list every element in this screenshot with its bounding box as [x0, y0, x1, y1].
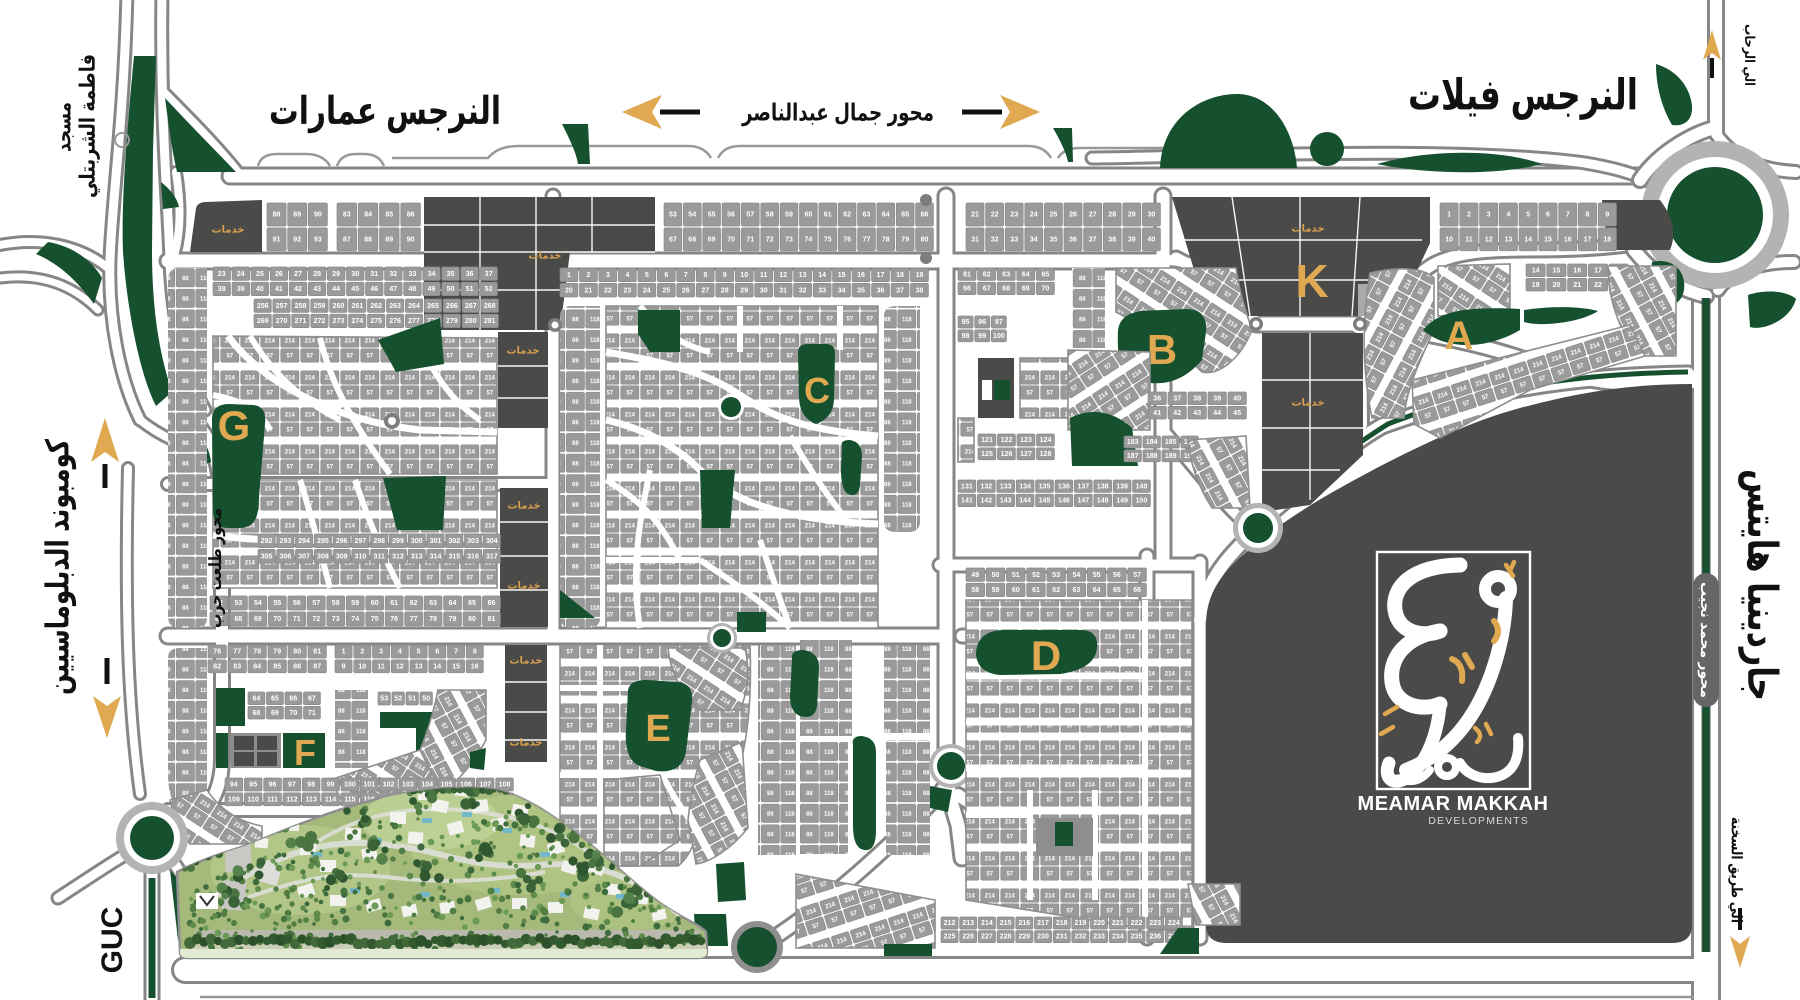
- svg-text:76: 76: [390, 616, 398, 623]
- svg-text:29: 29: [1128, 212, 1136, 219]
- svg-text:28: 28: [721, 287, 729, 294]
- svg-text:7: 7: [1566, 212, 1570, 219]
- svg-text:64: 64: [449, 600, 457, 607]
- svg-text:270: 270: [276, 318, 288, 325]
- svg-text:227: 227: [981, 934, 993, 941]
- svg-text:38: 38: [218, 286, 226, 293]
- svg-text:71: 71: [293, 616, 301, 623]
- svg-text:52: 52: [1032, 572, 1040, 579]
- svg-text:48: 48: [409, 286, 417, 293]
- svg-text:113: 113: [306, 796, 317, 803]
- svg-text:34: 34: [838, 287, 846, 294]
- svg-text:185: 185: [1165, 439, 1177, 446]
- svg-text:27: 27: [701, 287, 709, 294]
- svg-text:58: 58: [332, 600, 340, 607]
- svg-text:66: 66: [488, 600, 496, 607]
- svg-text:61: 61: [963, 271, 971, 278]
- svg-text:267: 267: [465, 303, 477, 310]
- svg-text:17: 17: [1594, 267, 1602, 274]
- svg-text:275: 275: [370, 318, 382, 325]
- svg-text:297: 297: [355, 538, 367, 545]
- svg-text:8: 8: [473, 649, 477, 656]
- svg-text:30: 30: [351, 271, 359, 278]
- svg-text:220: 220: [1093, 920, 1105, 927]
- svg-text:70: 70: [727, 236, 735, 243]
- svg-text:125: 125: [981, 451, 993, 458]
- svg-text:68: 68: [1002, 286, 1010, 293]
- svg-text:16: 16: [1564, 236, 1572, 243]
- svg-text:59: 59: [785, 212, 793, 219]
- svg-text:142: 142: [980, 498, 992, 505]
- svg-text:10: 10: [1445, 236, 1453, 243]
- svg-text:49: 49: [428, 286, 436, 293]
- svg-text:62: 62: [843, 212, 851, 219]
- svg-text:33: 33: [818, 287, 826, 294]
- svg-text:18: 18: [1603, 236, 1611, 243]
- svg-text:70: 70: [290, 710, 298, 717]
- svg-text:311: 311: [374, 553, 385, 560]
- svg-text:32: 32: [799, 287, 807, 294]
- svg-text:69: 69: [271, 710, 279, 717]
- svg-text:64: 64: [882, 212, 890, 219]
- svg-text:187: 187: [1127, 453, 1139, 460]
- svg-text:52: 52: [394, 696, 402, 703]
- svg-text:315: 315: [448, 553, 460, 560]
- svg-text:214: 214: [981, 920, 993, 927]
- svg-text:37: 37: [1089, 236, 1097, 243]
- svg-text:111: 111: [267, 796, 278, 803]
- svg-text:65: 65: [271, 695, 279, 702]
- svg-text:64: 64: [253, 695, 261, 702]
- svg-text:229: 229: [1018, 934, 1030, 941]
- svg-text:19: 19: [916, 272, 924, 279]
- svg-text:133: 133: [1000, 483, 1012, 490]
- svg-text:70: 70: [273, 616, 281, 623]
- svg-text:55: 55: [708, 212, 716, 219]
- svg-text:103: 103: [402, 782, 414, 789]
- svg-text:77: 77: [233, 649, 241, 656]
- svg-text:A: A: [1445, 314, 1474, 358]
- svg-text:62: 62: [1052, 587, 1060, 594]
- svg-text:66: 66: [290, 695, 298, 702]
- svg-text:80: 80: [293, 649, 301, 656]
- svg-text:39: 39: [1213, 395, 1221, 402]
- svg-text:40: 40: [256, 286, 264, 293]
- svg-text:66: 66: [921, 212, 929, 219]
- svg-text:82: 82: [213, 663, 221, 670]
- svg-text:53: 53: [1052, 572, 1060, 579]
- svg-text:44: 44: [332, 286, 340, 293]
- svg-text:14: 14: [818, 272, 826, 279]
- svg-text:30: 30: [760, 287, 768, 294]
- svg-text:305: 305: [261, 553, 273, 560]
- svg-text:215: 215: [1000, 920, 1012, 927]
- svg-text:85: 85: [273, 663, 281, 670]
- svg-text:31: 31: [779, 287, 787, 294]
- svg-text:97: 97: [288, 782, 296, 789]
- svg-text:147: 147: [1077, 498, 1089, 505]
- svg-text:39: 39: [1128, 236, 1136, 243]
- svg-text:23: 23: [218, 271, 226, 278]
- svg-text:232: 232: [1075, 934, 1087, 941]
- svg-text:13: 13: [1505, 236, 1513, 243]
- svg-text:16: 16: [471, 663, 479, 670]
- svg-text:132: 132: [980, 483, 992, 490]
- svg-text:25: 25: [256, 271, 264, 278]
- svg-text:79: 79: [449, 616, 457, 623]
- svg-text:31: 31: [971, 236, 979, 243]
- svg-text:188: 188: [1146, 453, 1158, 460]
- svg-text:20: 20: [1553, 282, 1561, 289]
- svg-text:35: 35: [1050, 236, 1058, 243]
- svg-text:73: 73: [332, 616, 340, 623]
- svg-text:57: 57: [312, 600, 320, 607]
- svg-text:25: 25: [662, 287, 670, 294]
- svg-text:139: 139: [1116, 483, 1128, 490]
- svg-text:23: 23: [624, 287, 632, 294]
- svg-text:2: 2: [360, 649, 364, 656]
- svg-text:265: 265: [427, 303, 439, 310]
- svg-text:B: B: [1147, 326, 1177, 373]
- svg-text:94: 94: [230, 782, 238, 789]
- svg-text:60: 60: [1012, 587, 1020, 594]
- svg-text:26: 26: [1069, 212, 1077, 219]
- svg-text:100: 100: [344, 782, 356, 789]
- svg-text:88: 88: [273, 212, 281, 219]
- svg-text:68: 68: [253, 710, 261, 717]
- svg-text:73: 73: [785, 236, 793, 243]
- svg-text:59: 59: [351, 600, 359, 607]
- svg-text:33: 33: [1010, 236, 1018, 243]
- svg-text:236: 236: [1149, 934, 1161, 941]
- svg-text:45: 45: [1233, 410, 1241, 417]
- svg-text:76: 76: [213, 649, 221, 656]
- svg-text:25: 25: [1050, 212, 1058, 219]
- svg-text:42: 42: [294, 286, 302, 293]
- svg-text:45: 45: [351, 286, 359, 293]
- svg-text:24: 24: [643, 287, 651, 294]
- svg-text:80: 80: [468, 616, 476, 623]
- svg-text:C: C: [804, 370, 830, 411]
- svg-text:140: 140: [1136, 483, 1148, 490]
- svg-text:22: 22: [991, 212, 999, 219]
- svg-text:41: 41: [275, 286, 283, 293]
- svg-text:20: 20: [565, 287, 573, 294]
- svg-text:63: 63: [1002, 271, 1010, 278]
- svg-text:104: 104: [421, 782, 433, 789]
- svg-text:98: 98: [962, 333, 970, 340]
- svg-text:75: 75: [824, 236, 832, 243]
- svg-text:280: 280: [465, 318, 477, 325]
- svg-text:281: 281: [484, 318, 496, 325]
- svg-text:40: 40: [1233, 395, 1241, 402]
- svg-text:F: F: [294, 732, 316, 773]
- svg-text:213: 213: [962, 920, 974, 927]
- svg-text:75: 75: [371, 616, 379, 623]
- svg-text:292: 292: [261, 538, 273, 545]
- svg-text:276: 276: [389, 318, 401, 325]
- svg-text:21: 21: [585, 287, 593, 294]
- svg-text:279: 279: [446, 318, 458, 325]
- svg-text:28: 28: [1108, 212, 1116, 219]
- svg-text:66: 66: [963, 286, 971, 293]
- svg-text:GUC: GUC: [96, 907, 129, 974]
- svg-text:36: 36: [877, 287, 885, 294]
- svg-text:78: 78: [429, 616, 437, 623]
- svg-text:234: 234: [1112, 934, 1124, 941]
- svg-text:108: 108: [499, 782, 511, 789]
- svg-text:28: 28: [313, 271, 321, 278]
- svg-text:97: 97: [995, 319, 1003, 326]
- svg-text:67: 67: [308, 695, 316, 702]
- svg-text:12: 12: [1485, 236, 1493, 243]
- svg-text:13: 13: [415, 663, 423, 670]
- svg-text:1: 1: [1447, 212, 1451, 219]
- svg-text:87: 87: [343, 236, 351, 243]
- svg-text:57: 57: [1133, 572, 1141, 579]
- svg-text:67: 67: [983, 286, 991, 293]
- svg-text:77: 77: [863, 236, 871, 243]
- svg-text:101: 101: [363, 782, 375, 789]
- svg-text:149: 149: [1116, 498, 1128, 505]
- svg-text:135: 135: [1039, 483, 1051, 490]
- svg-text:15: 15: [1553, 267, 1561, 274]
- svg-text:71: 71: [746, 236, 754, 243]
- svg-text:62: 62: [983, 271, 991, 278]
- svg-text:24: 24: [1030, 212, 1038, 219]
- svg-text:22: 22: [604, 287, 612, 294]
- svg-text:61: 61: [824, 212, 832, 219]
- svg-text:123: 123: [1020, 437, 1032, 444]
- svg-text:15: 15: [1544, 236, 1552, 243]
- svg-text:MEAMAR MAKKAH: MEAMAR MAKKAH: [1358, 793, 1549, 815]
- svg-text:296: 296: [336, 538, 348, 545]
- svg-text:15: 15: [452, 663, 460, 670]
- svg-text:34: 34: [1030, 236, 1038, 243]
- svg-text:G: G: [218, 402, 251, 449]
- svg-text:1: 1: [342, 649, 346, 656]
- svg-text:78: 78: [882, 236, 890, 243]
- svg-text:27: 27: [294, 271, 302, 278]
- svg-text:109: 109: [228, 796, 240, 803]
- svg-text:6: 6: [435, 649, 439, 656]
- svg-text:230: 230: [1037, 934, 1049, 941]
- svg-text:257: 257: [276, 303, 288, 310]
- svg-text:65: 65: [901, 212, 909, 219]
- svg-text:269: 269: [257, 318, 269, 325]
- svg-text:256: 256: [257, 303, 269, 310]
- svg-text:DEVELOPMENTS: DEVELOPMENTS: [1428, 815, 1529, 827]
- svg-text:300: 300: [411, 538, 423, 545]
- svg-text:11: 11: [1465, 236, 1473, 243]
- svg-text:235: 235: [1131, 934, 1143, 941]
- svg-text:222: 222: [1131, 920, 1143, 927]
- svg-text:49: 49: [971, 572, 979, 579]
- svg-text:39: 39: [237, 286, 245, 293]
- svg-text:307: 307: [298, 553, 310, 560]
- svg-text:66: 66: [1133, 587, 1141, 594]
- svg-text:96: 96: [978, 319, 986, 326]
- svg-text:16: 16: [1573, 267, 1581, 274]
- svg-text:51: 51: [408, 696, 416, 703]
- svg-text:115: 115: [344, 796, 355, 803]
- svg-text:E: E: [645, 708, 670, 750]
- svg-text:65: 65: [1042, 271, 1050, 278]
- svg-text:303: 303: [467, 538, 479, 545]
- svg-text:228: 228: [1000, 934, 1012, 941]
- svg-text:8: 8: [703, 272, 707, 279]
- svg-text:98: 98: [307, 782, 315, 789]
- svg-text:294: 294: [298, 538, 310, 545]
- svg-text:6: 6: [1546, 212, 1550, 219]
- svg-text:183: 183: [1127, 439, 1139, 446]
- svg-text:299: 299: [392, 538, 404, 545]
- svg-text:263: 263: [389, 303, 401, 310]
- svg-text:30: 30: [1148, 212, 1156, 219]
- svg-text:316: 316: [467, 553, 479, 560]
- svg-text:38: 38: [1108, 236, 1116, 243]
- svg-text:308: 308: [317, 553, 329, 560]
- svg-text:189: 189: [1165, 453, 1177, 460]
- svg-text:35: 35: [857, 287, 865, 294]
- svg-text:89: 89: [385, 236, 393, 243]
- svg-text:29: 29: [332, 271, 340, 278]
- svg-text:264: 264: [408, 303, 420, 310]
- svg-text:27: 27: [1089, 212, 1097, 219]
- svg-text:65: 65: [1113, 587, 1121, 594]
- svg-text:26: 26: [682, 287, 690, 294]
- svg-text:212: 212: [944, 920, 956, 927]
- svg-text:266: 266: [446, 303, 458, 310]
- svg-text:231: 231: [1056, 934, 1068, 941]
- svg-text:223: 223: [1149, 920, 1161, 927]
- svg-text:24: 24: [237, 271, 245, 278]
- svg-text:37: 37: [1173, 395, 1181, 402]
- svg-text:52: 52: [485, 286, 493, 293]
- svg-text:14: 14: [433, 663, 441, 670]
- svg-text:63: 63: [1073, 587, 1081, 594]
- svg-text:37: 37: [485, 271, 493, 278]
- svg-text:233: 233: [1093, 934, 1105, 941]
- svg-text:268: 268: [484, 303, 496, 310]
- svg-text:50: 50: [447, 286, 455, 293]
- svg-text:60: 60: [371, 600, 379, 607]
- svg-text:46: 46: [370, 286, 378, 293]
- svg-text:102: 102: [383, 782, 395, 789]
- svg-text:6: 6: [664, 272, 668, 279]
- svg-text:12: 12: [396, 663, 404, 670]
- svg-text:314: 314: [430, 553, 442, 560]
- svg-text:92: 92: [293, 236, 301, 243]
- svg-text:301: 301: [430, 538, 442, 545]
- svg-text:62: 62: [410, 600, 418, 607]
- svg-text:36: 36: [466, 271, 474, 278]
- svg-text:1: 1: [567, 272, 571, 279]
- svg-text:304: 304: [486, 538, 498, 545]
- svg-text:224: 224: [1168, 920, 1180, 927]
- svg-text:225: 225: [944, 934, 956, 941]
- svg-text:11: 11: [377, 663, 385, 670]
- svg-text:15: 15: [838, 272, 846, 279]
- svg-text:65: 65: [468, 600, 476, 607]
- svg-text:59: 59: [992, 587, 1000, 594]
- svg-text:51: 51: [466, 286, 474, 293]
- svg-text:29: 29: [740, 287, 748, 294]
- svg-text:21: 21: [971, 212, 979, 219]
- svg-text:68: 68: [235, 616, 243, 623]
- svg-text:136: 136: [1058, 483, 1070, 490]
- svg-text:32: 32: [389, 271, 397, 278]
- svg-text:53: 53: [380, 696, 388, 703]
- svg-text:16: 16: [857, 272, 865, 279]
- svg-text:44: 44: [1213, 410, 1221, 417]
- svg-text:114: 114: [325, 796, 336, 803]
- svg-text:150: 150: [1136, 498, 1148, 505]
- svg-text:126: 126: [1001, 451, 1013, 458]
- svg-text:122: 122: [1001, 437, 1013, 444]
- svg-text:43: 43: [1193, 410, 1201, 417]
- svg-text:100: 100: [993, 333, 1005, 340]
- svg-text:184: 184: [1146, 439, 1158, 446]
- svg-text:138: 138: [1097, 483, 1109, 490]
- svg-text:17: 17: [1584, 236, 1592, 243]
- svg-text:121: 121: [981, 437, 993, 444]
- svg-text:274: 274: [351, 318, 363, 325]
- svg-text:226: 226: [962, 934, 974, 941]
- svg-text:218: 218: [1056, 920, 1068, 927]
- svg-text:37: 37: [896, 287, 904, 294]
- svg-text:295: 295: [317, 538, 329, 545]
- svg-text:69: 69: [1022, 286, 1030, 293]
- svg-text:8: 8: [1586, 212, 1590, 219]
- svg-text:88: 88: [364, 236, 372, 243]
- svg-text:54: 54: [1073, 572, 1081, 579]
- svg-text:260: 260: [333, 303, 345, 310]
- svg-text:72: 72: [312, 616, 320, 623]
- svg-text:272: 272: [314, 318, 326, 325]
- svg-text:4: 4: [398, 649, 402, 656]
- svg-text:50: 50: [422, 696, 430, 703]
- svg-text:110: 110: [248, 796, 259, 803]
- svg-text:81: 81: [488, 616, 496, 623]
- svg-text:85: 85: [385, 212, 393, 219]
- svg-text:99: 99: [327, 782, 335, 789]
- svg-text:2: 2: [1467, 212, 1471, 219]
- svg-text:127: 127: [1020, 451, 1032, 458]
- svg-text:55: 55: [273, 600, 281, 607]
- svg-text:216: 216: [1018, 920, 1030, 927]
- svg-text:63: 63: [863, 212, 871, 219]
- svg-text:96: 96: [269, 782, 277, 789]
- svg-text:9: 9: [723, 272, 727, 279]
- svg-text:56: 56: [727, 212, 735, 219]
- svg-text:11: 11: [760, 272, 768, 279]
- svg-text:79: 79: [273, 649, 281, 656]
- svg-text:18: 18: [896, 272, 904, 279]
- svg-text:38: 38: [916, 287, 924, 294]
- svg-text:124: 124: [1040, 437, 1052, 444]
- svg-text:56: 56: [293, 600, 301, 607]
- svg-text:91: 91: [273, 236, 281, 243]
- svg-text:69: 69: [708, 236, 716, 243]
- svg-text:5: 5: [645, 272, 649, 279]
- svg-text:69: 69: [254, 616, 262, 623]
- svg-text:23: 23: [1010, 212, 1018, 219]
- svg-text:217: 217: [1037, 920, 1049, 927]
- svg-text:67: 67: [669, 236, 677, 243]
- svg-text:7: 7: [454, 649, 458, 656]
- svg-text:87: 87: [313, 663, 321, 670]
